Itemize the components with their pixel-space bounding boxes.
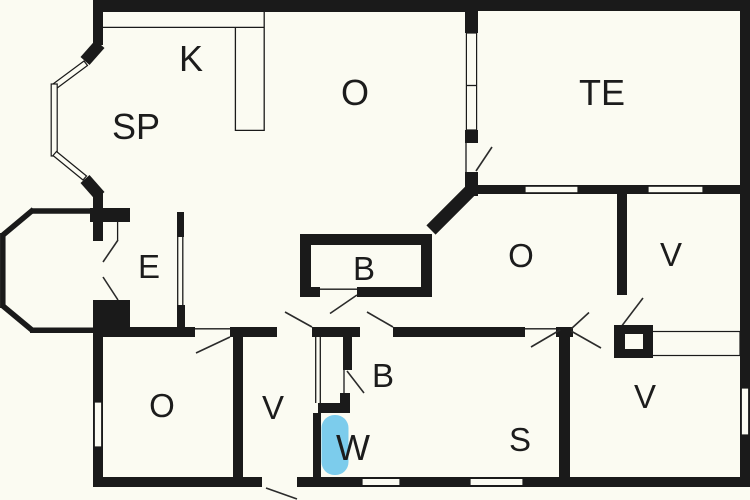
wall-segment xyxy=(177,305,185,335)
wall-segment xyxy=(467,0,750,11)
wall-segment xyxy=(177,212,184,237)
window xyxy=(362,478,400,485)
wall-segment xyxy=(312,327,360,337)
chimney-inner xyxy=(625,334,643,349)
window xyxy=(648,186,703,193)
room-label-v-vestibule: V xyxy=(262,389,284,426)
chimney-block xyxy=(614,325,653,358)
wall-segment xyxy=(93,222,103,241)
wall-segment xyxy=(93,300,130,330)
room-label-te: TE xyxy=(579,72,625,113)
room-label-o-top: O xyxy=(341,72,369,113)
room-label-o-bottom-left: O xyxy=(149,387,175,424)
window xyxy=(51,84,57,156)
room-label-v-bottom-right: V xyxy=(634,378,656,415)
window xyxy=(741,388,748,435)
wall-segment xyxy=(465,5,478,33)
wall-segment xyxy=(300,234,432,245)
wall-segment xyxy=(617,193,627,295)
wall-segment xyxy=(318,403,350,413)
room-label-b-upper: B xyxy=(353,250,375,287)
room-label-k: K xyxy=(179,38,203,79)
wall-segment xyxy=(93,477,750,487)
wall-segment xyxy=(93,0,103,45)
wall-segment xyxy=(467,185,750,194)
wall-segment xyxy=(465,130,478,143)
floor-plan-canvas: K SP O TE E B O V O V B W S V xyxy=(0,0,750,500)
wall-segment xyxy=(559,335,570,477)
window xyxy=(470,478,523,485)
window xyxy=(525,186,578,193)
wall-segment xyxy=(357,287,432,297)
wall-segment xyxy=(313,413,321,477)
wall-segment xyxy=(393,327,525,337)
floor-plan: K SP O TE E B O V O V B W S V xyxy=(0,0,750,500)
room-label-e: E xyxy=(138,248,160,285)
unfilled-wall-channel xyxy=(652,332,740,356)
wall-segment xyxy=(93,0,470,12)
window xyxy=(466,33,476,130)
room-label-sp: SP xyxy=(112,106,160,147)
room-label-o-mid: O xyxy=(508,237,534,274)
entry-door-gap xyxy=(262,476,297,488)
room-label-w-wc: W xyxy=(336,427,370,468)
room-label-b-lower: B xyxy=(372,357,394,394)
wall-segment xyxy=(233,337,243,477)
window xyxy=(94,402,101,447)
room-label-s: S xyxy=(509,421,531,458)
room-label-v-top-right: V xyxy=(660,236,682,273)
wall-segment xyxy=(300,287,320,297)
wall-segment xyxy=(230,327,277,337)
wall-segment xyxy=(90,208,130,222)
wall-segment xyxy=(343,335,352,370)
